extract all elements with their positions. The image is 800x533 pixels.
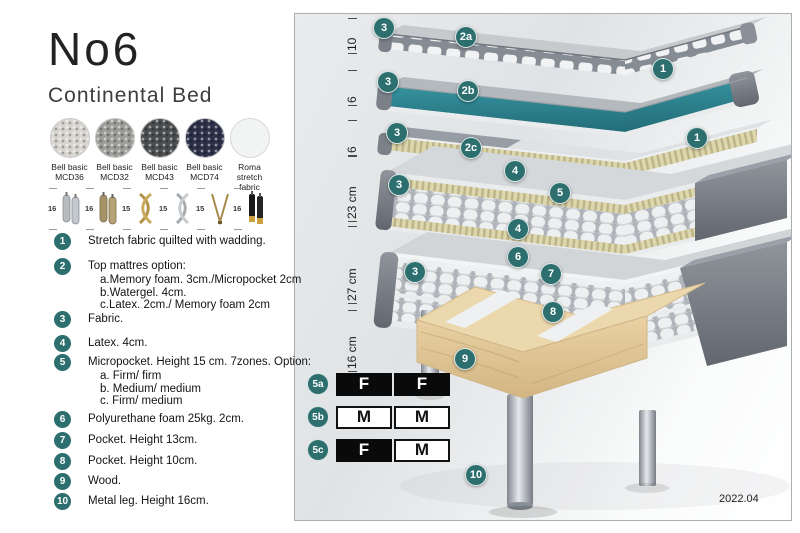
leg-icon-twisted-silver (171, 191, 195, 227)
firmness-cell: M (394, 439, 450, 462)
layer-2a-art (378, 17, 766, 75)
callout-badge-7: 7 (540, 263, 562, 285)
dimension-tick (348, 105, 357, 106)
dimension-label: 23 cm (345, 157, 359, 221)
legend-item-8: 8 Pocket. Height 10cm. (54, 453, 197, 470)
dimension-dash (49, 229, 57, 230)
callout-badge-4: 4 (504, 160, 526, 182)
swatch-mcd43: Bell basic MCD43 (137, 118, 182, 193)
leg-height-label: 15 (196, 204, 204, 213)
swatch-label-line1: Bell basic (51, 162, 87, 172)
swatch-label-line2: MCD36 (55, 172, 84, 182)
dimension-label: 16 cm (345, 311, 359, 371)
callout-badge-3: 3 (404, 261, 426, 283)
swatch-label-line1: Roma (238, 162, 261, 172)
legend-item-4: 4 Latex. 4cm. (54, 335, 147, 352)
leg-option-5: 15 (196, 186, 233, 232)
callout-badge-2c: 2c (460, 137, 482, 159)
page-title: No6 (48, 22, 141, 76)
leg-icon-cylinder-silver (60, 191, 84, 227)
legend-item-2: 2 Top mattres option: (54, 258, 186, 275)
page-subtitle: Continental Bed (48, 84, 212, 108)
layer-2b-art (376, 69, 763, 137)
leg-option-2: 16 (85, 186, 122, 232)
fabric-swatch-icon (185, 118, 225, 158)
dimension-dash (86, 229, 94, 230)
legend-text-10: Metal leg. Height 16cm. (88, 493, 209, 510)
legend-text-1: Stretch fabric quilted with wadding. (88, 233, 266, 250)
leg-option-4: 15 (159, 186, 196, 232)
legend-item-7: 7 Pocket. Height 13cm. (54, 432, 197, 449)
dimension-label: 6 (345, 121, 359, 155)
legend-badge-4: 4 (54, 335, 71, 352)
dimension-label: 27 cm (345, 227, 359, 303)
dimension-label: 10 (345, 19, 359, 53)
firmness-cell: M (336, 406, 392, 429)
callout-badge-5: 5 (549, 182, 571, 204)
callout-badge-2a: 2a (455, 26, 477, 48)
swatch-label-line2: MCD74 (190, 172, 219, 182)
legend-badge-7: 7 (54, 432, 71, 449)
legend-item-9: 9 Wood. (54, 473, 121, 490)
leg-height-label: 16 (233, 204, 241, 213)
dimension-tick (348, 221, 357, 222)
legend-badge-2: 2 (54, 258, 71, 275)
callout-badge-3: 3 (373, 17, 395, 39)
callout-badge-9: 9 (454, 348, 476, 370)
callout-badge-2b: 2b (457, 80, 479, 102)
swatch-mcd74: Bell basic MCD74 (182, 118, 227, 193)
callout-badge-3: 3 (388, 174, 410, 196)
legend-badge-6: 6 (54, 411, 71, 428)
legend-text-7: Pocket. Height 13cm. (88, 432, 197, 449)
legend-text-9: Wood. (88, 473, 121, 490)
firmness-row-5a: 5a F F (307, 372, 450, 396)
firmness-cell: M (394, 406, 450, 429)
dimension-tick (348, 303, 357, 304)
leg-icon-cylinder-brass (97, 191, 121, 227)
fabric-swatches: Bell basic MCD36 Bell basic MCD32 Bell b… (47, 118, 272, 193)
legend-text-4: Latex. 4cm. (88, 335, 147, 352)
dimension-label: 6 (345, 71, 359, 105)
callout-badge-8: 8 (542, 301, 564, 323)
legend-item-3: 3 Fabric. (54, 311, 123, 328)
swatch-label-line1: Bell basic (186, 162, 222, 172)
dimension-dash (49, 188, 57, 189)
dimension-leg: 16 cm (339, 310, 365, 372)
leg-options: 16 16 15 (48, 186, 270, 232)
swatch-label: Bell basic MCD74 (186, 162, 222, 182)
firmness-cell: F (336, 439, 392, 462)
leg-option-1: 16 (48, 186, 85, 232)
fabric-swatch-icon (50, 118, 90, 158)
swatch-label: Bell basic MCD36 (51, 162, 87, 182)
legend-badge-3: 3 (54, 311, 71, 328)
legend-item-1: 1 Stretch fabric quilted with wadding. (54, 233, 266, 250)
leg-height-label: 15 (159, 204, 167, 213)
swatch-mcd36: Bell basic MCD36 (47, 118, 92, 193)
bed-diagram: 10 6 6 23 cm 27 cm 16 cm 3 (294, 13, 792, 521)
legend-text-2: Top mattres option: (88, 258, 186, 275)
leg-option-6: 16 (233, 186, 270, 232)
dimension-dash (197, 229, 205, 230)
callout-badge-4: 4 (507, 218, 529, 240)
dimension-micropocket: 23 cm (339, 156, 365, 222)
swatch-label-line1: Bell basic (96, 162, 132, 172)
fabric-swatch-icon (230, 118, 270, 158)
swatch-label-line2: MCD32 (100, 172, 129, 182)
callout-badge-1: 1 (686, 127, 708, 149)
swatch-label-line1: Bell basic (141, 162, 177, 172)
dimension-layer-2b: 6 (339, 70, 365, 106)
dimension-dash (123, 188, 131, 189)
swatch-label: Bell basic MCD32 (96, 162, 132, 182)
firmness-table: 5a F F 5b M M 5c F M (307, 372, 450, 471)
dimension-tick (348, 53, 357, 54)
firmness-row-5c: 5c F M (307, 438, 450, 462)
firmness-cells: M M (336, 406, 450, 429)
legend-badge-8: 8 (54, 453, 71, 470)
firmness-badge-5b: 5b (307, 406, 329, 428)
legend-sub-2a: a.Memory foam. 3cm./Micropocket 2cm (100, 274, 301, 287)
legend-item-5: 5 Micropocket. Height 15 cm. 7zones. Opt… (54, 354, 311, 371)
product-sheet: No6 Continental Bed Bell basic MCD36 Bel… (0, 0, 800, 533)
callout-badge-10: 10 (465, 464, 487, 486)
fabric-swatch-icon (95, 118, 135, 158)
firmness-cell: F (336, 373, 392, 396)
legend-text-5: Micropocket. Height 15 cm. 7zones. Optio… (88, 354, 311, 371)
legend-item-6: 6 Polyurethane foam 25kg. 2cm. (54, 411, 244, 428)
legend-sub-2c: c.Latex. 2cm./ Memory foam 2cm (100, 299, 270, 312)
dimension-pocket-box: 27 cm (339, 226, 365, 304)
callout-badge-3: 3 (386, 122, 408, 144)
dimension-dash (234, 229, 242, 230)
leg-icon-black-gold (245, 191, 269, 227)
dimension-dash (160, 188, 168, 189)
legend-badge-5: 5 (54, 354, 71, 371)
swatch-label-line2: MCD43 (145, 172, 174, 182)
legend-badge-10: 10 (54, 493, 71, 510)
leg-height-label: 15 (122, 204, 130, 213)
legend-sub-5a: a. Firm/ firm (100, 370, 161, 383)
dimension-layer-2a: 10 (339, 18, 365, 54)
dimension-dash (86, 188, 94, 189)
swatch-mcd32: Bell basic MCD32 (92, 118, 137, 193)
firmness-badge-5a: 5a (307, 373, 329, 395)
leg-height-label: 16 (48, 204, 56, 213)
leg-height-label: 16 (85, 204, 93, 213)
callout-badge-1: 1 (652, 58, 674, 80)
leg-icon-twisted-gold (134, 191, 158, 227)
dimension-dash (160, 229, 168, 230)
callout-badge-3: 3 (377, 71, 399, 93)
legend-text-8: Pocket. Height 10cm. (88, 453, 197, 470)
info-panel: No6 Continental Bed Bell basic MCD36 Bel… (0, 0, 294, 533)
swatch-roma: Roma stretch fabric (227, 118, 272, 193)
dimension-layer-2c: 6 (339, 120, 365, 156)
swatch-label: Bell basic MCD43 (141, 162, 177, 182)
firmness-cells: F F (336, 373, 450, 396)
dimension-dash (123, 229, 131, 230)
firmness-badge-5c: 5c (307, 439, 329, 461)
leg-option-3: 15 (122, 186, 159, 232)
version-label: 2022.04 (719, 493, 759, 505)
firmness-row-5b: 5b M M (307, 405, 450, 429)
legend-item-10: 10 Metal leg. Height 16cm. (54, 493, 209, 510)
dimension-dash (234, 188, 242, 189)
legend-sub-5c: c. Firm/ medium (100, 395, 182, 408)
legend-text-6: Polyurethane foam 25kg. 2cm. (88, 411, 244, 428)
firmness-cells: F M (336, 439, 450, 462)
legend-badge-9: 9 (54, 473, 71, 490)
legend-text-3: Fabric. (88, 311, 123, 328)
leg-icon-hairpin-gold (208, 191, 232, 227)
dimension-dash (197, 188, 205, 189)
firmness-cell: F (394, 373, 450, 396)
legend-badge-1: 1 (54, 233, 71, 250)
fabric-swatch-icon (140, 118, 180, 158)
callout-badge-6: 6 (507, 246, 529, 268)
